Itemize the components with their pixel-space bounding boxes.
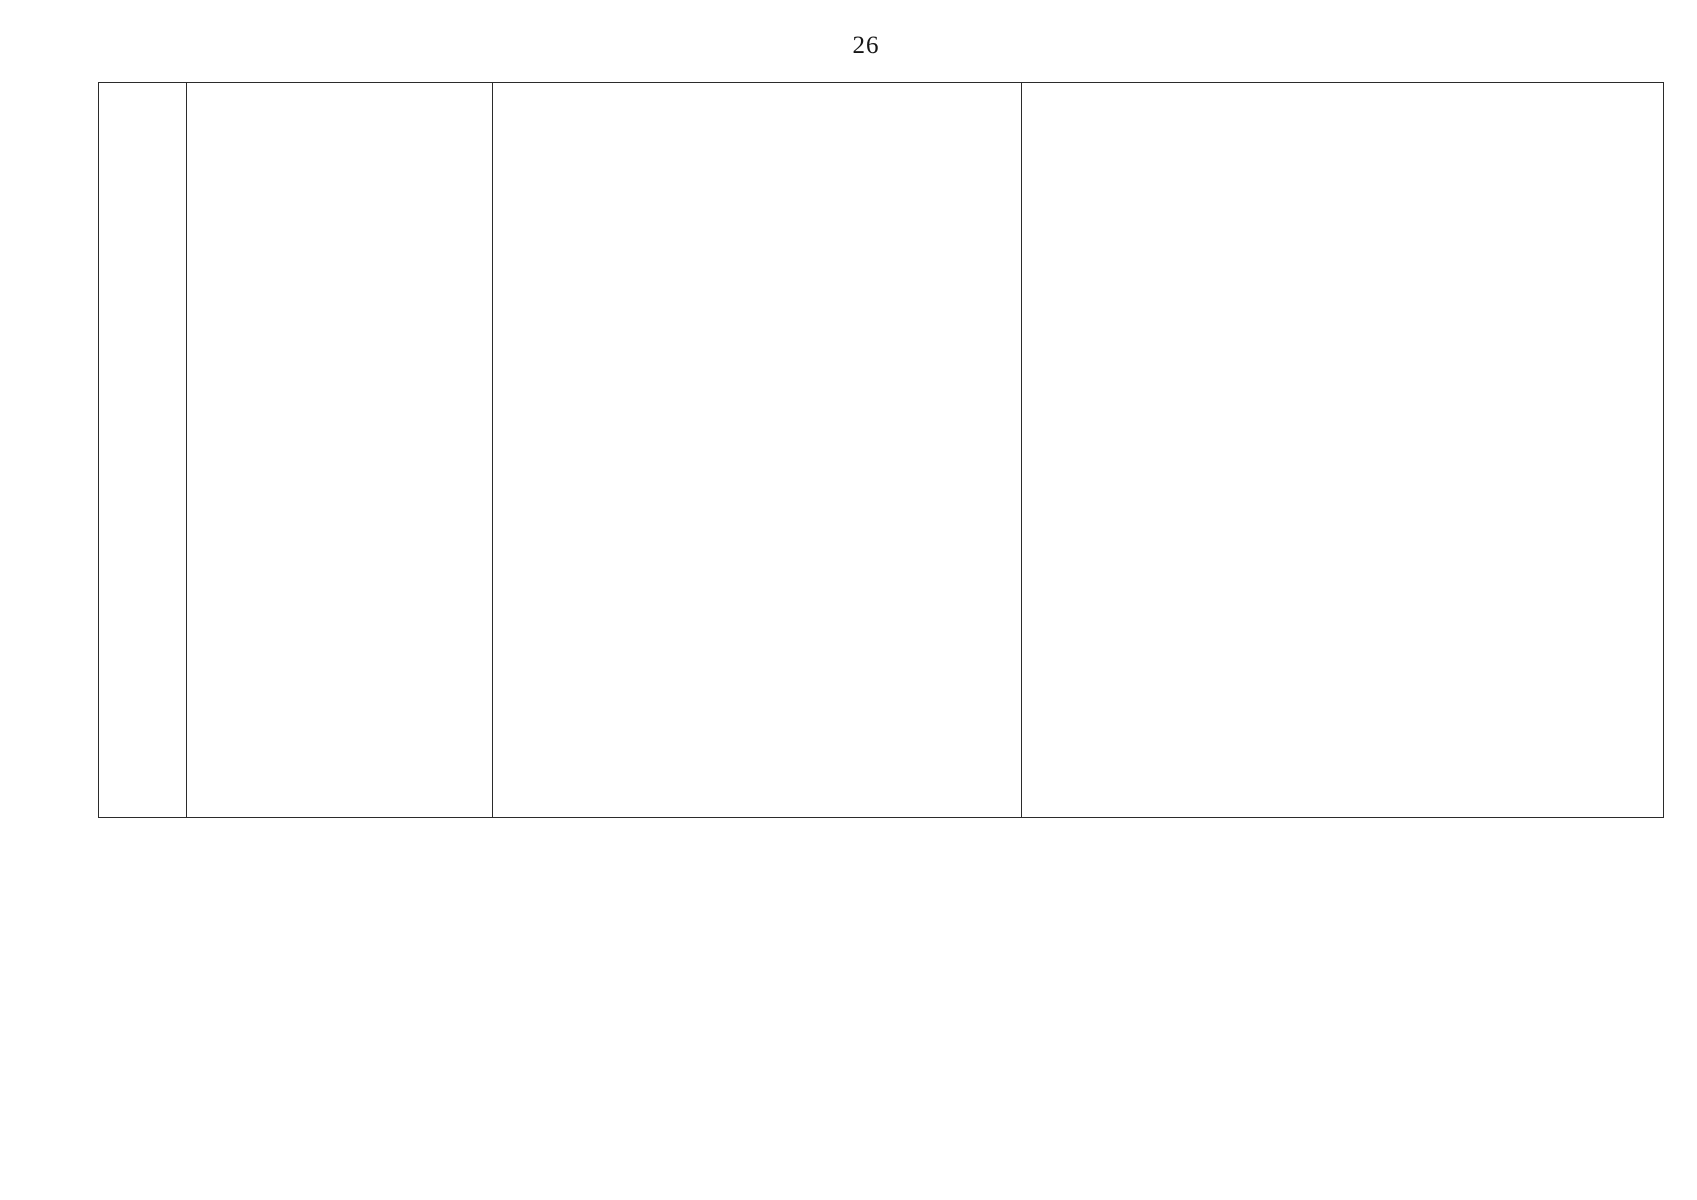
table-cell-photos: [1022, 83, 1663, 817]
table-cell-3: [493, 83, 1022, 817]
scanned-document-page: 26: [0, 0, 1697, 1200]
page-number: 26: [844, 32, 888, 60]
table-cell-1: [99, 83, 187, 817]
document-table: [98, 82, 1664, 818]
table-cell-2: [187, 83, 493, 817]
